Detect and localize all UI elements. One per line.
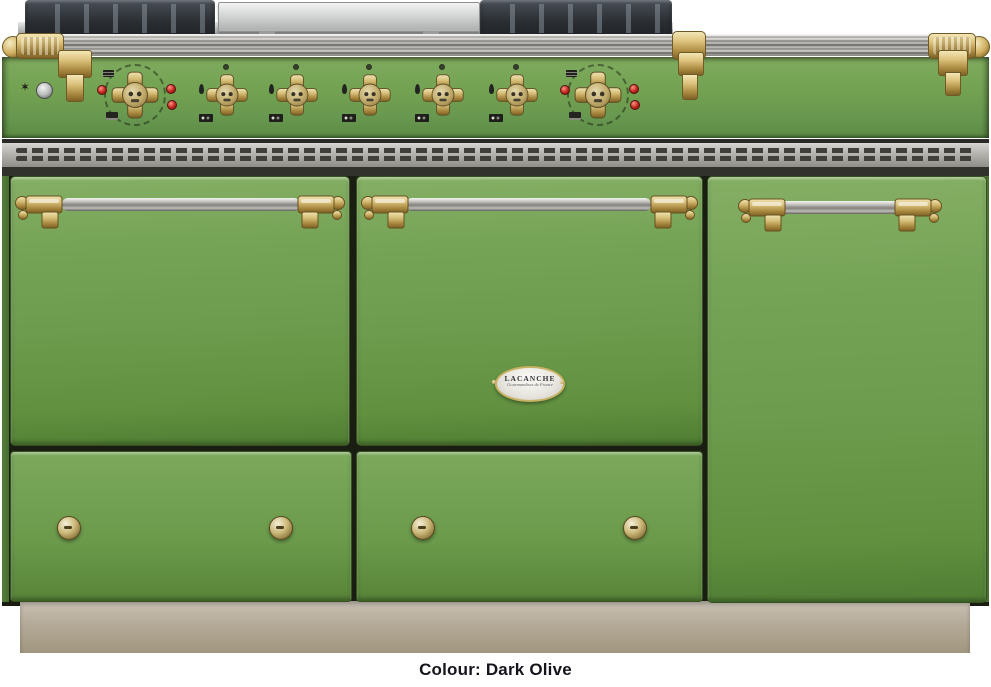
towel-rail xyxy=(30,34,960,56)
oven-floor-icon xyxy=(106,112,118,120)
oven-indicator-light xyxy=(167,100,177,110)
handle-bracket xyxy=(645,189,699,229)
drawer-knob xyxy=(411,516,435,540)
burner-map-icon xyxy=(199,114,213,122)
burner-knob xyxy=(195,57,259,138)
flame-icon xyxy=(489,84,494,94)
handle-bracket xyxy=(292,189,346,229)
vent-bottom-band xyxy=(2,167,989,176)
rail-bracket-middle xyxy=(678,52,704,76)
middle-door-handle xyxy=(406,198,651,211)
burner-knob xyxy=(485,57,549,138)
oven-indicator-light xyxy=(166,84,176,94)
flame-icon xyxy=(269,84,274,94)
flame-icon xyxy=(199,84,204,94)
rail-bracket-left-leg xyxy=(66,74,84,102)
burner-dot-icon xyxy=(293,64,299,70)
burner-map-icon xyxy=(489,114,503,122)
handle-bracket xyxy=(360,189,414,229)
handle-bracket xyxy=(14,189,68,229)
vent-slots-row xyxy=(16,148,975,153)
drawer-knob xyxy=(57,516,81,540)
left-door-handle xyxy=(62,198,300,211)
oven-floor-icon xyxy=(569,112,581,120)
burner-dot-icon xyxy=(513,64,519,70)
oven-indicator-light xyxy=(97,85,107,95)
vent-slots-row xyxy=(16,156,975,161)
oven-indicator-light xyxy=(560,85,570,95)
burner-knob xyxy=(265,57,329,138)
burner-map-icon xyxy=(342,114,356,122)
handle-bracket xyxy=(737,192,791,232)
vent-grille xyxy=(2,143,989,167)
burner-dot-icon xyxy=(439,64,445,70)
badge-rivet xyxy=(560,380,564,384)
burner-knob-icon xyxy=(275,73,319,117)
oven-indicator-light xyxy=(630,100,640,110)
rail-bracket-middle-leg xyxy=(682,74,698,100)
drawer-knob xyxy=(623,516,647,540)
burner-map-icon xyxy=(269,114,283,122)
burner-knob xyxy=(411,57,475,138)
burner-knob-icon xyxy=(421,73,465,117)
handle-bracket xyxy=(889,192,943,232)
oven-thermostat-knob xyxy=(553,57,643,138)
burner-knob-icon xyxy=(495,73,539,117)
right-door-handle xyxy=(780,201,900,214)
burner-knob xyxy=(338,57,402,138)
badge-rivet xyxy=(492,380,496,384)
flame-icon xyxy=(415,84,420,94)
product-image[interactable]: ✶ LACANCHE Gourmandises de France Colour… xyxy=(0,0,991,687)
plinth xyxy=(20,601,970,653)
oven-thermostat-knob xyxy=(90,57,180,138)
caption-text: Colour: Dark Olive xyxy=(0,660,991,680)
ignition-button xyxy=(36,82,53,99)
grill-icon xyxy=(566,70,577,77)
burner-dot-icon xyxy=(366,64,372,70)
middle-drawer xyxy=(356,451,703,602)
burner-knob-icon xyxy=(205,73,249,117)
right-cabinet-door xyxy=(707,176,987,603)
drawer-knob xyxy=(269,516,293,540)
spark-icon: ✶ xyxy=(20,81,30,93)
rail-endcap-left xyxy=(16,33,64,59)
grill-icon xyxy=(103,70,114,77)
flame-icon xyxy=(342,84,347,94)
burner-dot-icon xyxy=(223,64,229,70)
side-trim-left xyxy=(2,176,9,602)
badge-brand: LACANCHE xyxy=(497,375,563,382)
rail-bracket-right-leg xyxy=(945,72,961,96)
burner-knob-icon xyxy=(348,73,392,117)
burner-map-icon xyxy=(415,114,429,122)
oven-indicator-light xyxy=(629,84,639,94)
lacanche-badge: LACANCHE Gourmandises de France xyxy=(495,366,565,402)
griddle-plate xyxy=(218,2,480,32)
